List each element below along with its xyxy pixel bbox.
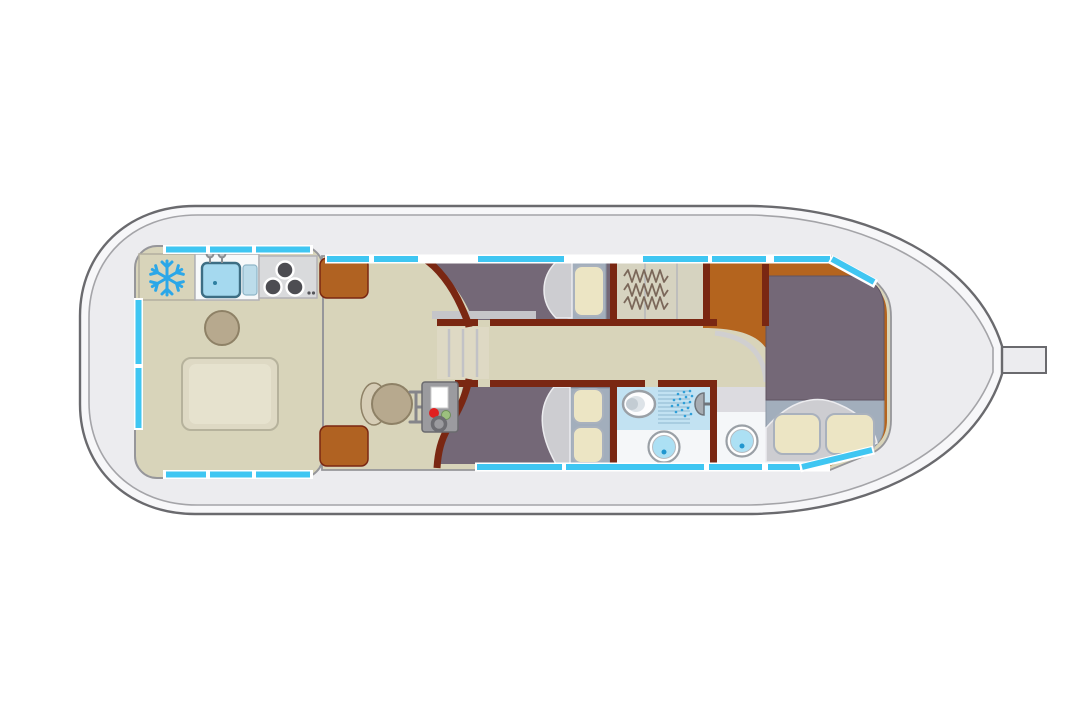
sink-drain	[213, 281, 217, 285]
wardrobe	[617, 262, 703, 320]
bow-cabin	[766, 276, 884, 464]
double-bed	[766, 276, 884, 400]
table-top	[189, 364, 271, 424]
partition-wall	[703, 262, 710, 326]
washbasin-icon	[727, 426, 758, 457]
control-panel	[422, 382, 458, 432]
partition-wall	[710, 380, 717, 470]
cabin-shelf	[432, 311, 536, 319]
stove-burner	[287, 279, 304, 296]
sink-basin	[202, 263, 240, 297]
toilet-icon	[623, 391, 655, 417]
washroom	[717, 387, 768, 466]
stove-burner	[277, 262, 294, 279]
boat-floorplan-canvas	[0, 0, 1092, 723]
locker-bottom	[320, 426, 368, 466]
corridor-wall	[437, 319, 478, 326]
drainboard	[243, 265, 257, 295]
stove-knob	[307, 291, 310, 294]
stove-knob	[312, 291, 315, 294]
console-screen	[431, 387, 448, 408]
bow-fitting	[1000, 347, 1046, 373]
bow-bulkhead	[762, 264, 769, 326]
corridor-wall	[658, 380, 712, 387]
stove-burner	[265, 279, 282, 296]
stool	[205, 311, 239, 345]
washroom-shade	[717, 387, 768, 414]
washbasin-icon	[649, 432, 680, 463]
pillow	[574, 266, 604, 316]
helm-seat	[372, 384, 412, 424]
pillow	[774, 414, 820, 454]
corridor-wall	[490, 380, 610, 387]
partition-wall	[610, 380, 617, 470]
corridor-wall	[490, 319, 717, 326]
shower-room	[617, 387, 711, 466]
locker-top	[320, 258, 368, 298]
pillow	[573, 427, 603, 463]
partition-wall	[610, 262, 617, 326]
corridor-wall	[617, 380, 645, 387]
floorplan-svg	[0, 0, 1092, 723]
pillow	[573, 389, 603, 423]
